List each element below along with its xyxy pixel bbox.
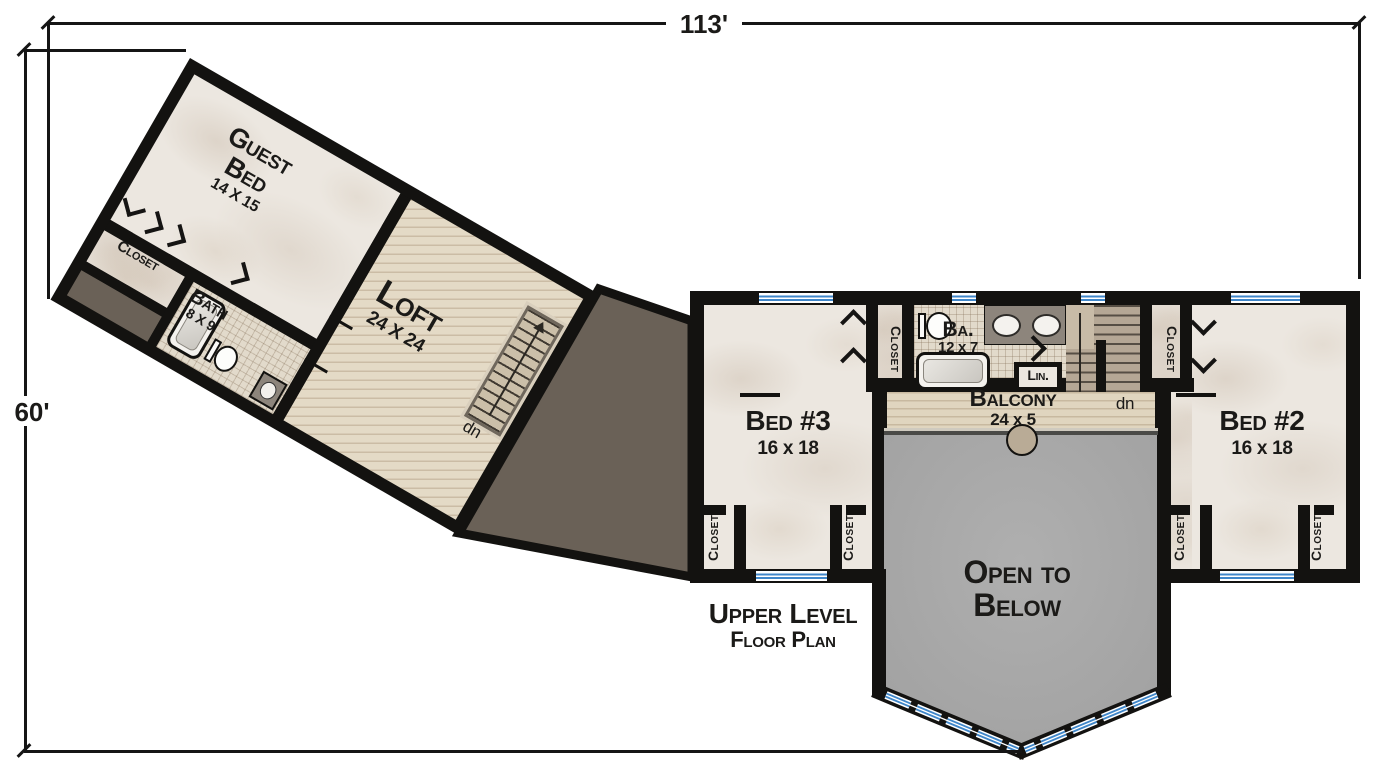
bed2-name: Bed #2 xyxy=(1202,407,1322,436)
stairs-down-arrow-line xyxy=(1079,313,1081,395)
bed3-label: Bed #3 16 x 18 xyxy=(728,407,848,458)
bed2-closet-left-label: Closet xyxy=(1171,509,1199,567)
wall-stub xyxy=(740,393,780,397)
balcony-end-wall xyxy=(1155,390,1168,433)
right-wing: Bed #3 16 x 18 Bed #2 16 x 18 Ba. 12 x 7… xyxy=(690,291,1360,583)
floor-plan-canvas: 113' 60' xyxy=(0,0,1400,771)
dim-extension-top-right xyxy=(1358,22,1361,279)
dim-extension-top-left xyxy=(47,22,50,299)
window xyxy=(1078,291,1108,305)
dim-height-label: 60' xyxy=(8,396,56,426)
plan-title-line1: Upper Level xyxy=(683,600,883,629)
window xyxy=(1217,569,1297,583)
open-to-below-line1: Open to xyxy=(927,556,1107,589)
prow-wall-right xyxy=(1157,569,1171,697)
bath2-size: 12 x 7 xyxy=(928,340,988,355)
wall-right xyxy=(1346,291,1360,583)
wall-stub xyxy=(1176,393,1216,397)
bed3-size: 16 x 18 xyxy=(728,439,848,458)
vanity-counter xyxy=(984,305,1066,345)
bath2-name: Ba. xyxy=(928,319,988,340)
balcony-label: Balcony 24 x 5 xyxy=(943,387,1083,429)
sink-basin xyxy=(1032,314,1061,337)
bath2-label: Ba. 12 x 7 xyxy=(928,319,988,356)
bed2-label: Bed #2 16 x 18 xyxy=(1202,407,1322,458)
closet-wall xyxy=(734,505,746,569)
balcony-end-wall xyxy=(874,390,887,433)
window xyxy=(1228,291,1303,305)
open-to-below-line2: Below xyxy=(927,589,1107,622)
dim-extension-bottom xyxy=(24,750,1022,753)
window xyxy=(756,291,836,305)
bed2-closet-right-label: Closet xyxy=(1308,509,1336,567)
wall-left xyxy=(690,291,704,583)
plan-title: Upper Level Floor Plan xyxy=(683,600,883,651)
bed2-size: 16 x 18 xyxy=(1202,439,1322,458)
dim-extension-left-top xyxy=(24,49,186,52)
balcony-size: 24 x 5 xyxy=(943,411,1083,428)
bed3-closet-right-label: Closet xyxy=(840,509,868,567)
main-stairs-down-label: dn xyxy=(1105,395,1145,412)
window xyxy=(753,569,830,583)
bed3-closet-left-label: Closet xyxy=(705,509,733,567)
balcony-name: Balcony xyxy=(943,387,1083,411)
dim-width-label: 113' xyxy=(666,8,742,38)
toilet-tank xyxy=(918,313,926,339)
bed3-name: Bed #3 xyxy=(728,407,848,436)
sink-basin xyxy=(992,314,1021,337)
bed2-top-closet-label: Closet xyxy=(1150,309,1180,389)
open-to-below-label: Open to Below xyxy=(927,556,1107,621)
closet-wall xyxy=(1200,505,1212,569)
linen-label: Lin. xyxy=(1014,368,1062,382)
sink-basin xyxy=(257,379,280,403)
bed3-top-closet-label: Closet xyxy=(876,309,904,389)
plan-title-line2: Floor Plan xyxy=(683,629,883,651)
window xyxy=(949,291,979,305)
